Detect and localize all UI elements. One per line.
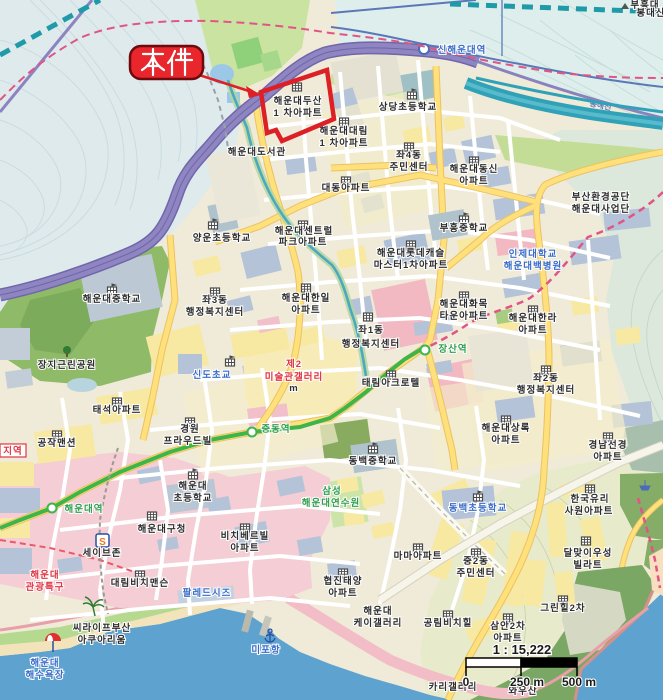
svg-text:해운대롯데캐슬: 해운대롯데캐슬 <box>377 247 445 259</box>
svg-text:아파트: 아파트 <box>230 542 259 554</box>
svg-text:해운대백병원: 해운대백병원 <box>504 260 562 272</box>
svg-text:아쿠아리움: 아쿠아리움 <box>78 634 127 646</box>
svg-text:해운대구청: 해운대구청 <box>138 523 187 535</box>
svg-text:태림아크로텔: 태림아크로텔 <box>362 377 420 389</box>
svg-text:아파트: 아파트 <box>459 175 488 187</box>
svg-text:해운대한일: 해운대한일 <box>282 292 331 304</box>
svg-text:행정복지센터: 행정복지센터 <box>342 338 400 350</box>
svg-text:카리갤러리: 카리갤러리 <box>429 681 478 693</box>
svg-text:아파트: 아파트 <box>491 434 520 446</box>
svg-text:공림비치힐: 공림비치힐 <box>424 617 473 629</box>
svg-text:파크아파트: 파크아파트 <box>279 236 328 248</box>
svg-text:1 차아파트: 1 차아파트 <box>320 137 369 149</box>
svg-text:태석아파트: 태석아파트 <box>93 404 142 416</box>
svg-text:프라우드빌: 프라우드빌 <box>164 435 213 447</box>
svg-text:해운대한라: 해운대한라 <box>509 312 558 324</box>
svg-text:행정복지센터: 행정복지센터 <box>517 384 575 396</box>
svg-text:경원: 경원 <box>180 423 199 435</box>
svg-text:제2: 제2 <box>286 358 302 370</box>
svg-text:부산환경공단: 부산환경공단 <box>572 191 630 203</box>
svg-text:케이갤러리: 케이갤러리 <box>354 617 403 629</box>
svg-text:중2동: 중2동 <box>463 556 489 567</box>
svg-text:신도초교: 신도초교 <box>193 369 232 381</box>
svg-text:경남선경: 경남선경 <box>589 439 628 451</box>
svg-text:해운대: 해운대 <box>30 657 59 669</box>
svg-text:해운대: 해운대 <box>363 605 392 617</box>
svg-text:타운아파트: 타운아파트 <box>440 310 489 322</box>
svg-text:대동아파트: 대동아파트 <box>322 182 371 194</box>
svg-text:500 m: 500 m <box>562 675 596 689</box>
svg-text:250 m: 250 m <box>510 675 544 689</box>
svg-text:아파트: 아파트 <box>593 451 622 463</box>
svg-text:장지근린공원: 장지근린공원 <box>38 359 96 371</box>
svg-text:초등학교: 초등학교 <box>174 492 213 504</box>
svg-text:빌라트: 빌라트 <box>573 559 602 571</box>
svg-text:해운대도서관: 해운대도서관 <box>228 146 286 158</box>
svg-text:양운초등학교: 양운초등학교 <box>193 232 251 244</box>
svg-text:마마아파트: 마마아파트 <box>394 550 443 562</box>
svg-text:해운대: 해운대 <box>30 569 59 581</box>
svg-text:달맞이우성: 달맞이우성 <box>564 547 613 559</box>
svg-text:아파트: 아파트 <box>291 304 320 316</box>
svg-text:그린힐2차: 그린힐2차 <box>540 602 585 614</box>
svg-text:해운대중학교: 해운대중학교 <box>83 293 141 305</box>
svg-text:해운대센트럴: 해운대센트럴 <box>275 225 333 237</box>
svg-text:0: 0 <box>463 675 470 689</box>
svg-text:협진태양: 협진태양 <box>324 575 363 587</box>
svg-text:팔레드시즈: 팔레드시즈 <box>183 587 232 599</box>
svg-text:사원아파트: 사원아파트 <box>565 505 614 517</box>
svg-text:해운대역: 해운대역 <box>65 503 104 515</box>
svg-text:관광특구: 관광특구 <box>26 581 65 593</box>
svg-text:동백초등학교: 동백초등학교 <box>449 502 507 514</box>
svg-text:삼안2차: 삼안2차 <box>490 620 526 632</box>
svg-text:비치베르빌: 비치베르빌 <box>221 530 270 542</box>
svg-text:미술관갤러리: 미술관갤러리 <box>265 371 323 383</box>
svg-text:지역: 지역 <box>3 445 22 457</box>
svg-text:삼성: 삼성 <box>322 485 341 497</box>
svg-text:아파트: 아파트 <box>328 587 357 599</box>
svg-text:신해운대역: 신해운대역 <box>438 44 487 56</box>
svg-text:상당초등학교: 상당초등학교 <box>379 101 437 113</box>
svg-text:해운대사업단: 해운대사업단 <box>572 203 630 215</box>
svg-text:마스터1차아파트: 마스터1차아파트 <box>374 259 448 271</box>
svg-text:해운대연수원: 해운대연수원 <box>302 497 360 509</box>
svg-text:부흥중학교: 부흥중학교 <box>440 222 489 234</box>
svg-text:해운대대림: 해운대대림 <box>320 125 369 137</box>
svg-text:좌1동: 좌1동 <box>358 324 384 336</box>
svg-text:좌3동: 좌3동 <box>202 294 228 306</box>
svg-text:미포항: 미포항 <box>251 644 280 656</box>
svg-text:주민센터: 주민센터 <box>390 161 429 173</box>
svg-text:해운대두산: 해운대두산 <box>274 95 323 107</box>
svg-text:1 차아파트: 1 차아파트 <box>274 107 323 119</box>
svg-text:인제대학교: 인제대학교 <box>509 248 558 260</box>
svg-text:장산역: 장산역 <box>438 343 467 355</box>
svg-text:m: m <box>289 383 298 394</box>
svg-text:주민센터: 주민센터 <box>457 567 496 579</box>
svg-text:해운대동신: 해운대동신 <box>450 163 499 175</box>
svg-text:좌2동: 좌2동 <box>533 372 559 384</box>
svg-text:해운대상록: 해운대상록 <box>482 422 531 434</box>
svg-text:중동역: 중동역 <box>261 423 290 435</box>
svg-text:S: S <box>99 537 106 548</box>
svg-text:좌4동: 좌4동 <box>396 149 422 161</box>
svg-text:공작맨션: 공작맨션 <box>38 437 77 449</box>
svg-text:행정복지센터: 행정복지센터 <box>186 306 244 318</box>
svg-text:해운대: 해운대 <box>178 480 207 492</box>
svg-text:한국유리: 한국유리 <box>571 493 610 505</box>
svg-text:해운대화목: 해운대화목 <box>440 298 489 310</box>
svg-text:씨라이프부산: 씨라이프부산 <box>73 622 131 634</box>
svg-text:아파트: 아파트 <box>518 324 547 336</box>
svg-text:해수욕장: 해수욕장 <box>26 669 65 681</box>
svg-text:대림비치맨슨: 대림비치맨슨 <box>111 577 169 589</box>
svg-text:1 : 15,222: 1 : 15,222 <box>493 642 552 657</box>
svg-text:세이브존: 세이브존 <box>83 547 122 559</box>
svg-text:동백중학교: 동백중학교 <box>349 455 398 467</box>
svg-text:봉대산: 봉대산 <box>636 7 663 19</box>
